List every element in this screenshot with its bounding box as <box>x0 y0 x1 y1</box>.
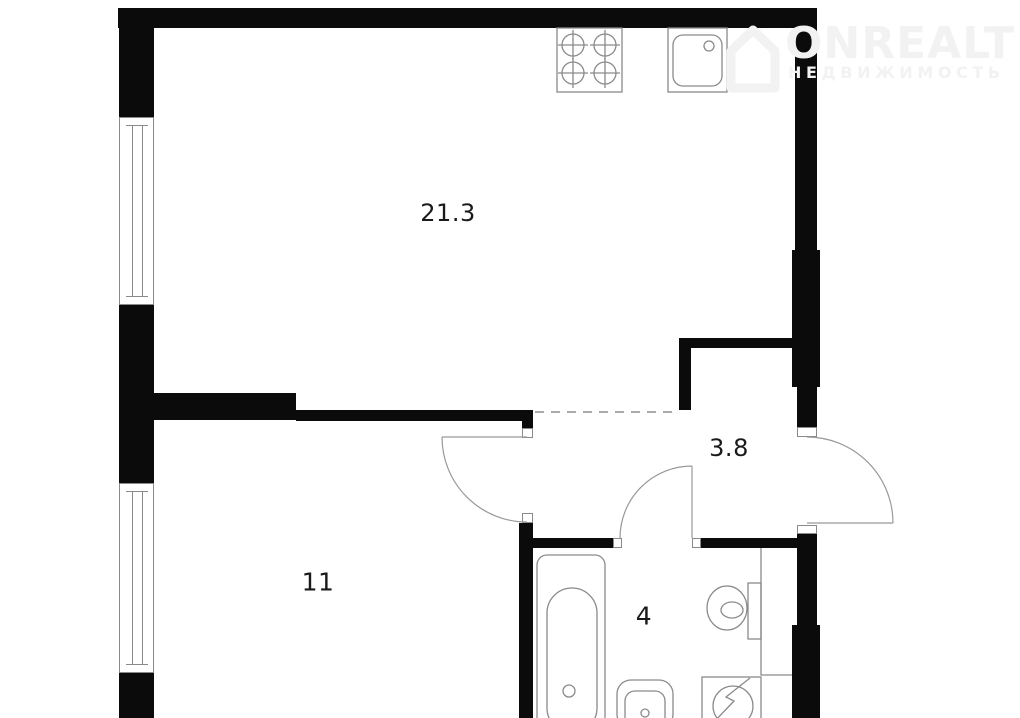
washing-machine-icon <box>702 677 761 718</box>
room-area-label-bathroom: 4 <box>636 602 652 631</box>
wall-left-bottom <box>119 673 154 718</box>
door-jamb <box>797 525 817 534</box>
wall-right-above-entry <box>797 387 817 427</box>
wall-left-middle <box>119 305 154 483</box>
bathtub-icon <box>537 555 605 718</box>
window <box>119 117 154 305</box>
wall-kitchen-hall-vertical <box>679 348 691 410</box>
wall-bedroom-bathroom <box>519 523 533 718</box>
window <box>119 483 154 673</box>
window-sill <box>126 664 148 665</box>
wall-hall-bottom-right <box>701 538 797 548</box>
window-sill <box>126 491 148 492</box>
watermark-brand: ONREALT <box>785 22 1015 66</box>
window-glass <box>132 491 143 665</box>
door-swing <box>620 466 692 538</box>
room-area-label-hallway: 3.8 <box>709 434 749 462</box>
wall-left-top <box>119 8 154 117</box>
duct-lines <box>761 548 792 675</box>
wall-hall-bottom-left <box>533 538 613 548</box>
door-jamb <box>692 538 701 548</box>
wall-right-below-entry <box>797 534 817 625</box>
wall-kitchen-hall-horizontal <box>679 338 793 348</box>
wall-right-pillar <box>792 250 820 387</box>
door-jamb <box>522 513 533 523</box>
room-area-label-bedroom: 11 <box>302 568 335 597</box>
toilet-icon <box>707 583 761 639</box>
door-jamb <box>613 538 622 548</box>
room-area-label-living-kitchen: 21.3 <box>420 199 475 227</box>
door-jamb <box>797 427 817 437</box>
wall-top <box>118 8 817 28</box>
washbasin-icon <box>617 680 673 718</box>
window-sill <box>126 296 148 297</box>
door-jamb <box>522 428 533 438</box>
floor-plan: 21.3 11 3.8 4 ONREALT НЕДВИЖИМОСТЬ <box>0 0 1020 718</box>
door-swing <box>442 437 527 522</box>
wall-divider-thick <box>153 393 296 420</box>
window-glass <box>132 125 143 297</box>
window-sill <box>126 125 148 126</box>
watermark: ONREALT НЕДВИЖИМОСТЬ <box>714 18 1014 98</box>
wall-door11-stub <box>522 410 533 428</box>
entrance-door-swing <box>807 437 893 523</box>
wall-divider-thin <box>296 410 532 421</box>
stove-icon <box>557 28 622 92</box>
wall-right-bottom <box>792 625 820 718</box>
house-icon <box>726 24 780 94</box>
watermark-subtitle: НЕДВИЖИМОСТЬ <box>788 63 1005 82</box>
